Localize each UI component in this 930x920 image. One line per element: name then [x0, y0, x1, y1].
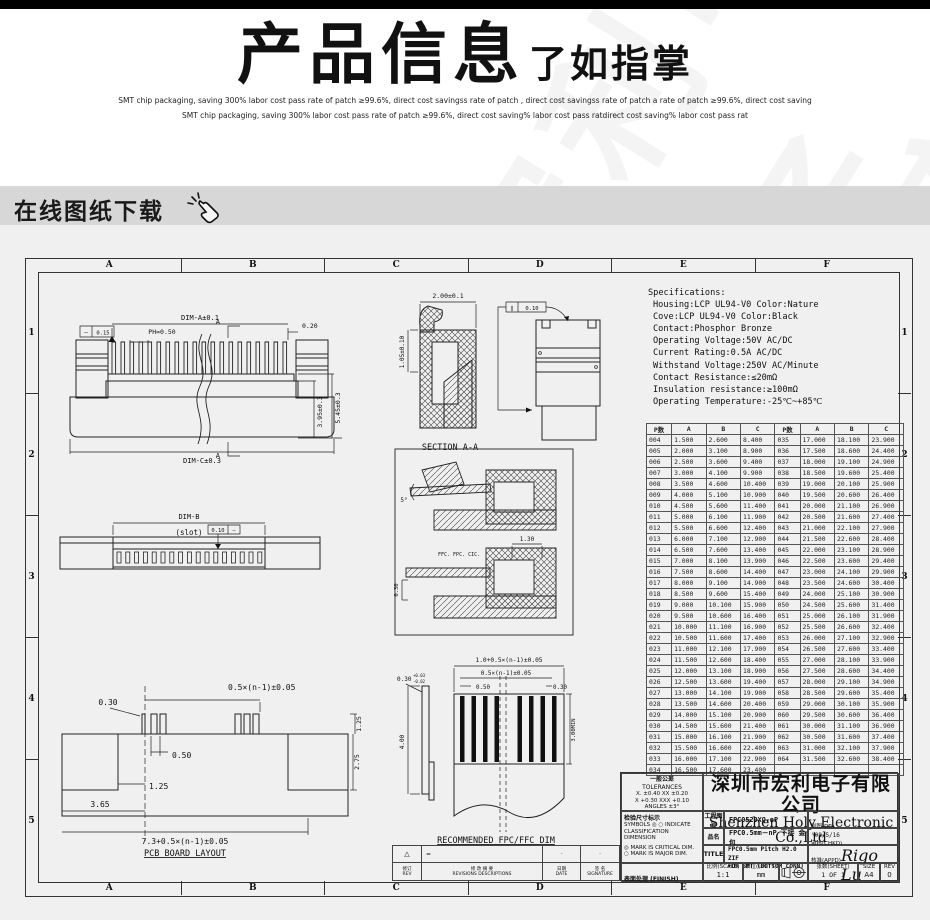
pn-table-cell: 029 — [647, 710, 672, 721]
pn-table-cell: 17.100 — [706, 754, 740, 765]
spec-line: Contact Resistance:≤20mΩ — [648, 372, 908, 384]
pn-table-header-cell: B — [835, 424, 869, 435]
pn-table-cell: 21.500 — [800, 534, 834, 545]
dim-label: 1.30 — [520, 536, 535, 543]
pn-table-cell: 28.100 — [835, 655, 869, 666]
border-label: 2 — [25, 393, 38, 515]
pn-table-cell: 023 — [647, 644, 672, 655]
pn-table-row: 0094.0005.10010.90004019.50020.60026.400 — [647, 490, 904, 501]
pn-table-cell: 14.900 — [741, 578, 775, 589]
pn-table-cell: 17.000 — [800, 435, 834, 446]
pn-table-cell: 19.400 — [741, 677, 775, 688]
pn-table-cell: 007 — [647, 468, 672, 479]
units-cell: 单位(UNITS) mm — [743, 863, 779, 882]
pn-table-cell: 11.400 — [741, 501, 775, 512]
pn-table-cell: 9.000 — [672, 600, 706, 611]
border-letters-top: ABCDEF — [38, 258, 898, 272]
pn-table-row: 0167.5008.60014.40004723.00024.10029.900 — [647, 567, 904, 578]
pn-table-cell: 025 — [647, 666, 672, 677]
revision-strip: △ = - - 修订 REV 修 改 摘 要 REVISIONS DESCRIP… — [392, 845, 620, 881]
units-label: 单位(UNITS) — [744, 864, 778, 871]
pn-table-cell: 9.400 — [741, 457, 775, 468]
revision-col-desc: 修 改 摘 要 REVISIONS DESCRIPTIONS — [422, 863, 543, 880]
top-black-bar — [0, 0, 930, 9]
title-line1: FPC0.5mm Pitch H2.0 ZIF — [728, 846, 807, 863]
dim-label: 2.00±0.1 — [432, 292, 463, 300]
page-subtitle: 了如指掌 — [529, 33, 693, 88]
pn-table-cell: 29.400 — [869, 556, 904, 567]
pn-table-cell: 21.000 — [800, 523, 834, 534]
pn-table-header-cell: P数 — [647, 424, 672, 435]
pn-table-cell: 9.900 — [741, 468, 775, 479]
pn-table-cell: 3.100 — [706, 446, 740, 457]
pn-table-cell: 11.100 — [706, 622, 740, 633]
pn-table-cell: 4.100 — [706, 468, 740, 479]
pn-table-row: 0188.5009.60015.40004924.00025.10030.900 — [647, 589, 904, 600]
dim-label: 5° — [400, 497, 407, 504]
pn-table-cell: 33.900 — [869, 655, 904, 666]
pn-table-row: 02612.50013.60019.40005728.00029.10034.9… — [647, 677, 904, 688]
pn-table-cell: 041 — [775, 501, 800, 512]
pn-table-row: 0199.00010.10015.90005024.50025.60031.40… — [647, 600, 904, 611]
title-label: TITLE — [703, 845, 724, 863]
page-title: 产品信息 — [237, 22, 525, 88]
pn-table-cell: 25.000 — [800, 611, 834, 622]
pn-table-cell: 27.000 — [800, 655, 834, 666]
pn-table-cell: 045 — [775, 545, 800, 556]
pn-table-cell: 21.100 — [835, 501, 869, 512]
pn-table-cell: 050 — [775, 600, 800, 611]
revision-desc-value: = — [422, 846, 543, 863]
pn-table-header-cell: B — [706, 424, 740, 435]
dim-label: 0.30 — [394, 583, 400, 596]
gdt-value: 0.15 — [96, 331, 109, 337]
pn-table-cell: 29.500 — [800, 710, 834, 721]
dim-label: 0.30 — [98, 698, 117, 707]
pn-table-row: 02713.00014.10019.90005828.50029.60035.4… — [647, 688, 904, 699]
pn-table-cell: 13.600 — [706, 677, 740, 688]
pn-table-cell: 019 — [647, 600, 672, 611]
pn-table-row: 0125.5006.60012.40004321.00022.10027.900 — [647, 523, 904, 534]
pn-table-cell: 34.400 — [869, 666, 904, 677]
section-aa-drawing: 2.00±0.1 1.05±0.10 ∥ 0.10 SECTION A-A — [398, 290, 633, 455]
dim-label: 1.25 — [355, 716, 363, 732]
dim-label: 5.45±0.3 — [334, 392, 342, 423]
border-label: B — [181, 258, 325, 272]
date-en: DATE — [556, 872, 568, 877]
pn-table-cell: 5.000 — [672, 512, 706, 523]
pn-table-cell: 064 — [775, 754, 800, 765]
pn-table-cell: 004 — [647, 435, 672, 446]
border-letters-bottom: ABCDEF — [38, 881, 898, 895]
pn-table-cell: 17.900 — [741, 644, 775, 655]
pn-table-cell: 29.000 — [800, 699, 834, 710]
pn-table-row: 0157.0008.10013.90004622.50023.60029.400 — [647, 556, 904, 567]
marketing-tagline-2: SMT chip packaging, saving 300% labor co… — [0, 111, 930, 120]
spec-line: Specifications: — [648, 287, 908, 299]
dim-label: PH=0.50 — [148, 328, 175, 336]
border-label: E — [611, 258, 755, 272]
pn-table-cell: 35.400 — [869, 688, 904, 699]
pn-table-cell: 9.500 — [672, 611, 706, 622]
pn-table-cell: 10.900 — [741, 490, 775, 501]
pn-table-cell: 6.500 — [672, 545, 706, 556]
revision-col-rev: 修订 REV — [393, 863, 422, 880]
pn-table-cell: 017 — [647, 578, 672, 589]
dim-label: 0.30 — [553, 685, 567, 691]
drawn-cell: 制图(DR) '08/5/16 — [808, 811, 899, 828]
pn-table-cell: 37.900 — [869, 743, 904, 754]
pn-table-header-cell: A — [800, 424, 834, 435]
pn-table-header-row: P数ABCP数ABC — [647, 424, 904, 435]
pn-table-cell: 049 — [775, 589, 800, 600]
pn-table-cell: 25.100 — [835, 589, 869, 600]
pn-table-cell: 20.400 — [741, 699, 775, 710]
pn-table-cell: 27.400 — [869, 512, 904, 523]
insp-line2: CLASSIFICATION DIMENSION — [624, 829, 700, 842]
pn-table-cell: 10.000 — [672, 622, 706, 633]
pn-table-cell: 4.500 — [672, 501, 706, 512]
pn-table-cell: 024 — [647, 655, 672, 666]
pn-table-cell: 29.100 — [835, 677, 869, 688]
pn-table-cell: 20.900 — [741, 710, 775, 721]
tolerances-cell: 一般公差 TOLERANCES X. ±0.40 XX ±0.20 X +0.3… — [621, 773, 703, 811]
pn-table-cell: 34.900 — [869, 677, 904, 688]
pn-table-cell: 055 — [775, 655, 800, 666]
pn-table-cell: 021 — [647, 622, 672, 633]
pn-table-row: 0115.0006.10011.90004220.50021.60027.400 — [647, 512, 904, 523]
gdt-symbol: — — [84, 330, 88, 337]
dim-label: FFC. FPC. CIC. — [438, 552, 480, 558]
pn-table-cell: 027 — [647, 688, 672, 699]
pn-table-cell: 7.100 — [706, 534, 740, 545]
dim-label: DIM-A±0.1 — [181, 314, 219, 322]
pn-table-cell: 32.100 — [835, 743, 869, 754]
pn-table-cell: 21.400 — [741, 721, 775, 732]
pn-table-cell: 009 — [647, 490, 672, 501]
pn-table-cell: 19.500 — [800, 490, 834, 501]
dim-label: 0.20 — [302, 322, 318, 330]
pn-table-row: 02914.00015.10020.90006029.50030.60036.4… — [647, 710, 904, 721]
units-value: mm — [744, 871, 778, 879]
pn-table-row: 02110.00011.10016.90005225.50026.60032.4… — [647, 622, 904, 633]
spec-line: Housing:LCP UL94-V0 Color:Nature — [648, 299, 908, 311]
pn-table-cell: 29.900 — [869, 567, 904, 578]
pn-table-cell: 008 — [647, 479, 672, 490]
pn-table-row: 0073.0004.1009.90003818.50019.60025.400 — [647, 468, 904, 479]
eng-no-value: FPC0520XQ-nP — [724, 811, 808, 828]
pn-table-cell: 23.600 — [835, 556, 869, 567]
pn-table-cell: 14.000 — [672, 710, 706, 721]
rev-value: 0 — [881, 871, 898, 879]
pn-table-cell: 7.600 — [706, 545, 740, 556]
pn-table-cell: 21.900 — [741, 732, 775, 743]
pn-table-row: 02411.50012.60018.40005527.00028.10033.9… — [647, 655, 904, 666]
pn-table-cell: 30.100 — [835, 699, 869, 710]
pn-table-cell: 20.000 — [800, 501, 834, 512]
pn-table-cell: 16.400 — [741, 611, 775, 622]
pn-table-cell: 28.400 — [869, 534, 904, 545]
pn-table-cell: 15.900 — [741, 600, 775, 611]
pn-table-cell: 16.000 — [672, 754, 706, 765]
pn-table-cell: 31.100 — [835, 721, 869, 732]
border-label: 3 — [25, 515, 38, 637]
pn-table-row: 02311.00012.10017.90005426.50027.60033.4… — [647, 644, 904, 655]
dim-label: 0.50 — [476, 685, 490, 691]
pn-table-cell: 18.900 — [741, 666, 775, 677]
tol-title-en: TOLERANCES — [622, 784, 702, 792]
pn-table-cell: 1.500 — [672, 435, 706, 446]
tol-line3: ANGLES ±3° — [622, 804, 702, 811]
pn-table-cell: 051 — [775, 611, 800, 622]
scale-cell: 比例(SCALE) 1:1 — [703, 863, 743, 882]
pn-table-cell: 10.400 — [741, 479, 775, 490]
pn-table-cell: 7.500 — [672, 567, 706, 578]
tol-title-cn: 一般公差 — [622, 776, 702, 784]
pn-table-cell: 3.600 — [706, 457, 740, 468]
pn-table-cell: 057 — [775, 677, 800, 688]
section-mark: A — [216, 318, 221, 326]
pn-table-cell: 028 — [647, 699, 672, 710]
pn-table-cell: 28.600 — [835, 666, 869, 677]
pn-table-cell: 30.500 — [800, 732, 834, 743]
dim-label: (slot) — [175, 528, 202, 537]
pn-table-cell: 10.100 — [706, 600, 740, 611]
sheet-label: 张数(SHEET) — [809, 864, 857, 871]
pn-table-cell: 12.500 — [672, 677, 706, 688]
desc-en: REVISIONS DESCRIPTIONS — [452, 872, 511, 877]
pn-table-cell: 25.600 — [835, 600, 869, 611]
pn-table-cell: 053 — [775, 633, 800, 644]
pn-table-cell: 8.400 — [741, 435, 775, 446]
pn-table-cell: 26.900 — [869, 501, 904, 512]
view-caption: PCB BOARD LAYOUT — [144, 849, 226, 859]
dim-label: 0.30 — [397, 676, 412, 683]
pn-table-cell: 32.400 — [869, 622, 904, 633]
pn-table-cell: 8.900 — [741, 446, 775, 457]
dim-label: 1.0+0.5×(n-1)±0.05 — [475, 657, 542, 664]
pn-table-cell: 8.100 — [706, 556, 740, 567]
pn-table-cell: 30.600 — [835, 710, 869, 721]
pn-table-cell: 14.100 — [706, 688, 740, 699]
pn-table-cell: 13.100 — [706, 666, 740, 677]
spec-line: Operating Temperature:-25℃~+85℃ — [648, 396, 908, 408]
front-view-drawing: DIM-A±0.1 PH=0.50 0.20 — 0.15 3.95±0.3 5… — [52, 286, 352, 474]
pn-table-row: 02512.00013.10018.90005627.50028.60034.4… — [647, 666, 904, 677]
pn-table-cell: 30.400 — [869, 578, 904, 589]
pn-table-cell: 26.600 — [835, 622, 869, 633]
pn-table-cell: 12.000 — [672, 666, 706, 677]
pn-table-cell: 35.900 — [869, 699, 904, 710]
spec-line: Insulation resistance:≥100mΩ — [648, 384, 908, 396]
pn-table-cell: 25.900 — [869, 479, 904, 490]
pn-table-cell: 061 — [775, 721, 800, 732]
pn-table-cell: 6.000 — [672, 534, 706, 545]
revision-triangle: △ — [393, 846, 422, 863]
pn-table-cell: 19.900 — [741, 688, 775, 699]
pn-table-cell: 27.100 — [835, 633, 869, 644]
spec-line: Withstand Voltage:250V AC/Minute — [648, 360, 908, 372]
pn-table-cell: 3.000 — [672, 468, 706, 479]
download-link-label[interactable]: 在线图纸下载 — [14, 192, 164, 226]
pn-table-cell: 8.500 — [672, 589, 706, 600]
rev-en: REV — [402, 872, 411, 877]
pn-table-cell: 26.000 — [800, 633, 834, 644]
hero-header: 产品信息 了如指掌 — [0, 22, 930, 88]
pn-table-cell: 16.900 — [741, 622, 775, 633]
pn-table-cell: 039 — [775, 479, 800, 490]
dim-label: DIM-B — [178, 513, 199, 521]
click-hand-icon[interactable] — [184, 188, 220, 224]
pn-table-cell: 11.600 — [706, 633, 740, 644]
gdt-symbol: ∥ — [511, 305, 514, 312]
border-label: D — [468, 258, 612, 272]
pn-table-cell: 022 — [647, 633, 672, 644]
pn-table-cell: 24.900 — [869, 457, 904, 468]
border-label: 5 — [898, 759, 911, 881]
pn-table-cell: 15.000 — [672, 732, 706, 743]
pn-table-cell: 12.400 — [741, 523, 775, 534]
pn-table-cell: 31.600 — [835, 732, 869, 743]
pn-table-cell: 060 — [775, 710, 800, 721]
pn-table-cell: 28.900 — [869, 545, 904, 556]
slot-view-drawing: DIM-B (slot) 0.10 — — [58, 497, 323, 592]
pn-table-cell: 8.000 — [672, 578, 706, 589]
pn-table-cell: 5.100 — [706, 490, 740, 501]
spec-line: Contact:Phosphor Bronze — [648, 323, 908, 335]
download-bar[interactable]: 在线图纸下载 — [0, 186, 930, 225]
projection-symbol-cell — [779, 863, 808, 882]
pn-table-cell: 23.900 — [869, 435, 904, 446]
dim-label: 3.00MIN — [571, 718, 577, 741]
insp-line1: SYMBOLS ◎ ○ INDICATE — [624, 822, 700, 829]
pn-table-cell: 006 — [647, 457, 672, 468]
pn-table-cell: 14.500 — [672, 721, 706, 732]
pn-table-cell: 036 — [775, 446, 800, 457]
pn-table-cell: 23.000 — [800, 567, 834, 578]
pn-table-cell: 11.000 — [672, 644, 706, 655]
pn-table-cell: 15.400 — [741, 589, 775, 600]
pn-table-cell: 054 — [775, 644, 800, 655]
pn-table-cell: 18.100 — [835, 435, 869, 446]
pn-table-cell: 043 — [775, 523, 800, 534]
border-label: A — [38, 258, 181, 272]
pn-table-cell: 31.400 — [869, 600, 904, 611]
specifications-block: Specifications:Housing:LCP UL94-V0 Color… — [648, 287, 908, 408]
pn-table-cell: 18.600 — [835, 446, 869, 457]
pn-table-cell: 9.600 — [706, 589, 740, 600]
pn-table-cell: 26.400 — [869, 490, 904, 501]
inspection-cell: 检验尺寸标示 SYMBOLS ◎ ○ INDICATE CLASSIFICATI… — [621, 811, 703, 863]
pn-table-cell: 013 — [647, 534, 672, 545]
pn-table-cell: 22.100 — [835, 523, 869, 534]
pn-table-cell: 4.600 — [706, 479, 740, 490]
pn-table-cell: 005 — [647, 446, 672, 457]
title-block: 一般公差 TOLERANCES X. ±0.40 XX ±0.20 X +0.3… — [620, 772, 898, 881]
pn-table-cell: 12.900 — [741, 534, 775, 545]
pn-table-cell: 10.600 — [706, 611, 740, 622]
pn-table-row: 0104.5005.60011.40004120.00021.10026.900 — [647, 501, 904, 512]
border-label: D — [468, 881, 612, 895]
scale-label: 比例(SCALE) — [704, 864, 742, 871]
pn-table-row: 0083.5004.60010.40003919.00020.10025.900 — [647, 479, 904, 490]
spec-line: Cove:LCP UL94-V0 Color:Black — [648, 311, 908, 323]
pn-table-cell: 4.000 — [672, 490, 706, 501]
pn-table-row: 0041.5002.6008.40003517.00018.10023.900 — [647, 435, 904, 446]
product-name-label: 品名 — [703, 828, 724, 845]
pn-table-cell: 22.600 — [835, 534, 869, 545]
pn-table-cell: 012 — [647, 523, 672, 534]
pn-table-cell: 28.500 — [800, 688, 834, 699]
pn-table-cell: 5.600 — [706, 501, 740, 512]
pn-table-cell: 032 — [647, 743, 672, 754]
dim-label: 7.3+0.5×(n-1)±0.05 — [142, 837, 229, 846]
pn-table-cell: 6.100 — [706, 512, 740, 523]
pn-table-row: 0052.0003.1008.90003617.50018.60024.400 — [647, 446, 904, 457]
sheet-value: 1 OF 1 — [809, 871, 857, 879]
pn-table-row: 0209.50010.60016.40005125.00026.10031.90… — [647, 611, 904, 622]
pn-table-cell: 7.000 — [672, 556, 706, 567]
pn-table-cell: 31.500 — [800, 754, 834, 765]
finish-label: 表面处理 (FINISH) — [624, 876, 679, 883]
pn-table-cell: 14.400 — [741, 567, 775, 578]
pn-table-cell: 044 — [775, 534, 800, 545]
rev-cell: REV 0 — [880, 863, 899, 882]
pn-table-cell: 033 — [647, 754, 672, 765]
pn-table-cell: 27.900 — [869, 523, 904, 534]
pn-table-cell: 31.900 — [869, 611, 904, 622]
size-cell: SIZE A4 — [858, 863, 880, 882]
pn-table-cell: 6.600 — [706, 523, 740, 534]
pn-table-cell: 037 — [775, 457, 800, 468]
dim-label: 1.05±0.10 — [399, 335, 406, 368]
pn-table-cell: 056 — [775, 666, 800, 677]
pn-table-cell: 24.400 — [869, 446, 904, 457]
pn-table-cell: 042 — [775, 512, 800, 523]
pn-table-cell: 035 — [775, 435, 800, 446]
pn-table-cell: 23.100 — [835, 545, 869, 556]
pn-table-cell: 37.400 — [869, 732, 904, 743]
part-number-table: P数ABCP数ABC0041.5002.6008.40003517.00018.… — [646, 423, 904, 775]
pn-table-cell: 15.600 — [706, 721, 740, 732]
pn-table-cell: 063 — [775, 743, 800, 754]
pn-table-cell: 11.500 — [672, 655, 706, 666]
pn-table-row: 02813.50014.60020.40005929.00030.10035.9… — [647, 699, 904, 710]
dim-label: 0.5×(n-1)±0.05 — [481, 670, 532, 677]
title-value: FPC0.5mm Pitch H2.0 ZIF FOR SMT (BOTTOM … — [724, 845, 808, 863]
pn-table-cell: 36.400 — [869, 710, 904, 721]
pn-table-body: P数ABCP数ABC0041.5002.6008.40003517.00018.… — [647, 424, 904, 776]
pn-table-cell: 19.000 — [800, 479, 834, 490]
border-label: B — [181, 881, 325, 895]
dim-label: 2.75 — [353, 754, 361, 770]
pn-table-cell: 27.500 — [800, 666, 834, 677]
marketing-tagline-1: SMT chip packaging, saving 300% labor co… — [0, 96, 930, 105]
insp-title: 检验尺寸标示 — [624, 813, 700, 822]
pn-table-header-cell: P数 — [775, 424, 800, 435]
pn-table-cell: 12.100 — [706, 644, 740, 655]
pn-table-cell: 22.900 — [741, 754, 775, 765]
border-label: 1 — [25, 272, 38, 393]
pn-table-cell: 26.100 — [835, 611, 869, 622]
pn-table-cell: 18.400 — [741, 655, 775, 666]
third-angle-projection-icon — [781, 866, 807, 879]
dim-label: 3.95±0.3 — [316, 396, 324, 427]
pn-table-header-cell: C — [741, 424, 775, 435]
gdt-symbol: — — [232, 528, 236, 534]
dim-tol: -0.02 — [413, 679, 426, 684]
checked-cell: 审核(CHKD) — [808, 828, 899, 845]
